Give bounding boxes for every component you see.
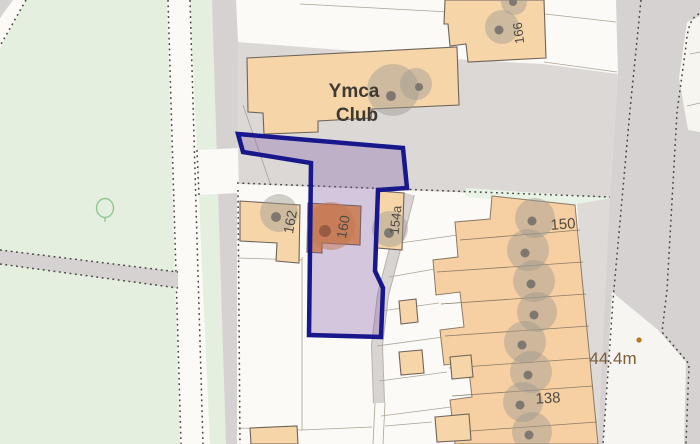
tree-trunk-dot	[528, 217, 537, 226]
tree-trunk-dot	[521, 249, 530, 258]
outbuilding	[250, 426, 298, 444]
tree-trunk-dot	[525, 431, 534, 440]
outbuilding	[450, 355, 473, 379]
label-154a: 154a	[387, 204, 405, 235]
tree-trunk-dot	[524, 371, 533, 380]
tree-trunk-dot	[518, 341, 527, 350]
tree-trunk-dot	[527, 280, 536, 289]
os-map-view: Ymca Club 166 162 160 154a 150 138 44.4m	[0, 0, 700, 444]
outbuilding	[399, 299, 418, 324]
spot-height-dot	[636, 337, 641, 342]
outbuilding	[435, 414, 471, 442]
drive-plot	[197, 148, 239, 195]
map-canvas: Ymca Club 166 162 160 154a 150 138 44.4m	[0, 0, 700, 444]
label-ymca-line1: Ymca	[329, 81, 380, 102]
label-150: 150	[550, 215, 576, 234]
label-spot-height: 44.4m	[589, 349, 636, 368]
tree-trunk-dot	[530, 311, 539, 320]
label-166: 166	[510, 21, 528, 44]
tree-trunk-dot	[495, 26, 504, 35]
tree-trunk-dot	[516, 401, 525, 410]
tree-trunk-dot	[386, 91, 396, 101]
outbuilding	[399, 350, 424, 375]
tree-canopy-circle	[400, 68, 432, 100]
label-138: 138	[535, 389, 561, 407]
tree-trunk-dot	[415, 83, 423, 91]
label-ymca-line2: Club	[336, 105, 378, 126]
tree-trunk-dot	[271, 212, 281, 222]
